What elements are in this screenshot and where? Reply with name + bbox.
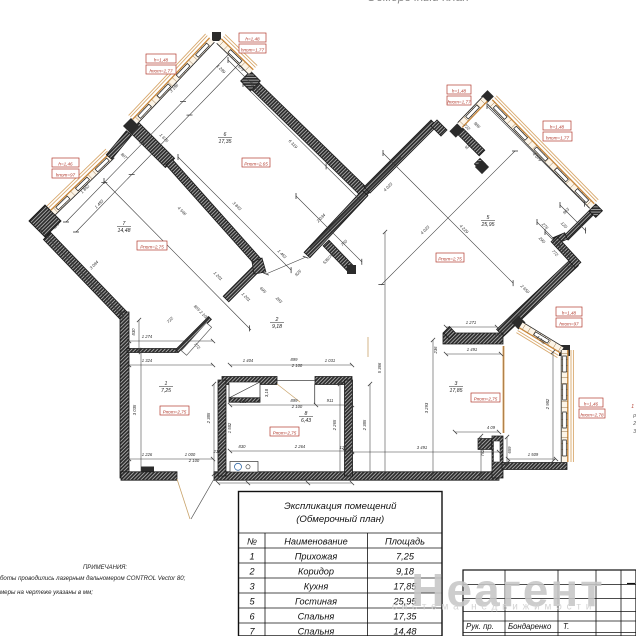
svg-text:Кухня: Кухня [304,582,329,592]
svg-text:14,48: 14,48 [394,627,418,636]
svg-text:h=1,48: h=1,48 [154,57,169,62]
svg-text:hпот=1,77: hпот=1,77 [241,47,265,52]
svg-text:2 982: 2 982 [545,398,550,410]
svg-text:боты проводились лазерным даль: боты проводились лазерным дальномером CO… [0,575,186,582]
svg-text:2 265: 2 265 [332,419,337,431]
svg-text:866: 866 [240,399,248,404]
svg-text:Рпот=2,75: Рпот=2,75 [163,409,187,414]
svg-text:17,85: 17,85 [450,388,463,394]
svg-text:Экспликация помещений: Экспликация помещений [284,501,397,512]
svg-text:Рпот=2,75: Рпот=2,75 [438,256,462,261]
svg-text:hпот=97: hпот=97 [559,321,579,326]
svg-text:1 582: 1 582 [227,422,232,433]
svg-text:Гостиная: Гостиная [295,597,337,607]
svg-text:h=1,48: h=1,48 [550,124,565,129]
svg-text:h=1,48: h=1,48 [245,36,260,41]
svg-text:2 264: 2 264 [294,444,306,449]
svg-text:6: 6 [249,612,255,622]
svg-text:2: 2 [248,567,254,577]
svg-text:5: 5 [487,215,490,221]
svg-text:1 509: 1 509 [528,452,539,457]
svg-text:2 385: 2 385 [206,412,211,424]
svg-text:1: 1 [631,404,634,410]
svg-text:7: 7 [249,627,255,636]
svg-text:hпот=1,77: hпот=1,77 [447,99,471,104]
svg-text:1 324: 1 324 [142,358,153,363]
svg-text:1 271: 1 271 [466,320,476,325]
svg-text:2 100: 2 100 [188,458,200,463]
svg-text:Коридор: Коридор [298,567,334,577]
svg-text:830: 830 [239,444,247,449]
svg-text:3 035: 3 035 [132,404,137,415]
svg-text:1 491: 1 491 [467,347,477,352]
svg-text:17,35: 17,35 [219,139,232,145]
svg-text:Площадь: Площадь [385,537,425,547]
svg-text:hпот=2,77: hпот=2,77 [149,68,173,73]
svg-text:899: 899 [291,398,299,403]
svg-text:Прихожая: Прихожая [295,552,338,562]
svg-text:899: 899 [291,357,299,362]
svg-text:Рпот=2,65: Рпот=2,65 [244,161,268,166]
svg-text:1 000: 1 000 [185,452,196,457]
svg-text:7,25: 7,25 [396,552,415,562]
svg-text:ПРИМЕЧАНИЯ:: ПРИМЕЧАНИЯ: [83,565,127,571]
svg-text:hпот=97: hпот=97 [56,172,76,177]
svg-text:216: 216 [213,449,222,454]
svg-text:hпот=1,77: hпот=1,77 [546,135,570,140]
svg-text:1 404: 1 404 [243,358,254,363]
svg-text:hпот=2,78: hпот=2,78 [580,412,604,417]
svg-text:2 385: 2 385 [362,419,367,431]
svg-text:Спальня: Спальня [298,612,335,622]
svg-text:р: р [632,413,636,419]
svg-text:911: 911 [327,398,334,403]
svg-text:1: 1 [249,552,254,562]
svg-text:1 031: 1 031 [325,358,335,363]
svg-text:h=1,48: h=1,48 [562,310,577,315]
svg-text:1 226: 1 226 [142,452,153,457]
svg-text:Обмерочный план: Обмерочный план [367,0,469,4]
svg-text:1: 1 [165,381,168,387]
svg-text:659: 659 [507,446,512,454]
svg-text:3 491: 3 491 [417,445,427,450]
svg-text:Т.: Т. [563,622,569,631]
svg-text:Спальня: Спальня [298,627,335,636]
svg-text:792: 792 [480,449,485,457]
svg-text:h=1,46: h=1,46 [58,161,73,166]
svg-text:830: 830 [131,328,136,336]
svg-text:система недвижимости: система недвижимости [392,602,596,613]
svg-text:2 100: 2 100 [291,363,303,368]
svg-text:меры на чертеже указаны в мм;: меры на чертеже указаны в мм; [0,589,93,596]
svg-text:2: 2 [275,317,279,323]
svg-text:236: 236 [433,346,438,355]
svg-text:№: № [247,537,257,547]
svg-text:h=1,48: h=1,48 [452,88,467,93]
svg-text:3 293: 3 293 [424,402,429,413]
svg-text:3,18: 3,18 [264,388,269,397]
svg-text:2: 2 [632,421,636,427]
svg-text:6: 6 [224,132,227,138]
svg-text:5: 5 [249,597,255,607]
svg-text:5 366: 5 366 [377,362,382,373]
svg-text:14,48: 14,48 [118,228,131,234]
svg-text:Наименование: Наименование [284,537,347,547]
svg-text:6,43: 6,43 [301,418,311,424]
svg-text:3: 3 [249,582,255,592]
svg-text:2 100: 2 100 [291,404,303,409]
svg-text:7,25: 7,25 [161,388,171,394]
svg-text:1 274: 1 274 [142,334,153,339]
svg-text:9,18: 9,18 [272,324,282,330]
svg-text:Рпот=2,75: Рпот=2,75 [273,430,297,435]
svg-text:3: 3 [455,381,458,387]
svg-text:Рпот=2,75: Рпот=2,75 [140,244,164,249]
svg-text:25,95: 25,95 [481,222,495,228]
svg-text:8: 8 [305,411,308,417]
svg-text:Рук. пр.: Рук. пр. [466,622,494,631]
svg-text:Рпот=2,75: Рпот=2,75 [474,396,498,401]
svg-text:4 09: 4 09 [487,425,496,430]
svg-text:Бондаренко: Бондаренко [508,622,552,631]
svg-text:h=1,46: h=1,46 [584,401,599,406]
svg-text:120: 120 [340,445,348,450]
svg-text:(Обмерочный план): (Обмерочный план) [296,514,384,525]
